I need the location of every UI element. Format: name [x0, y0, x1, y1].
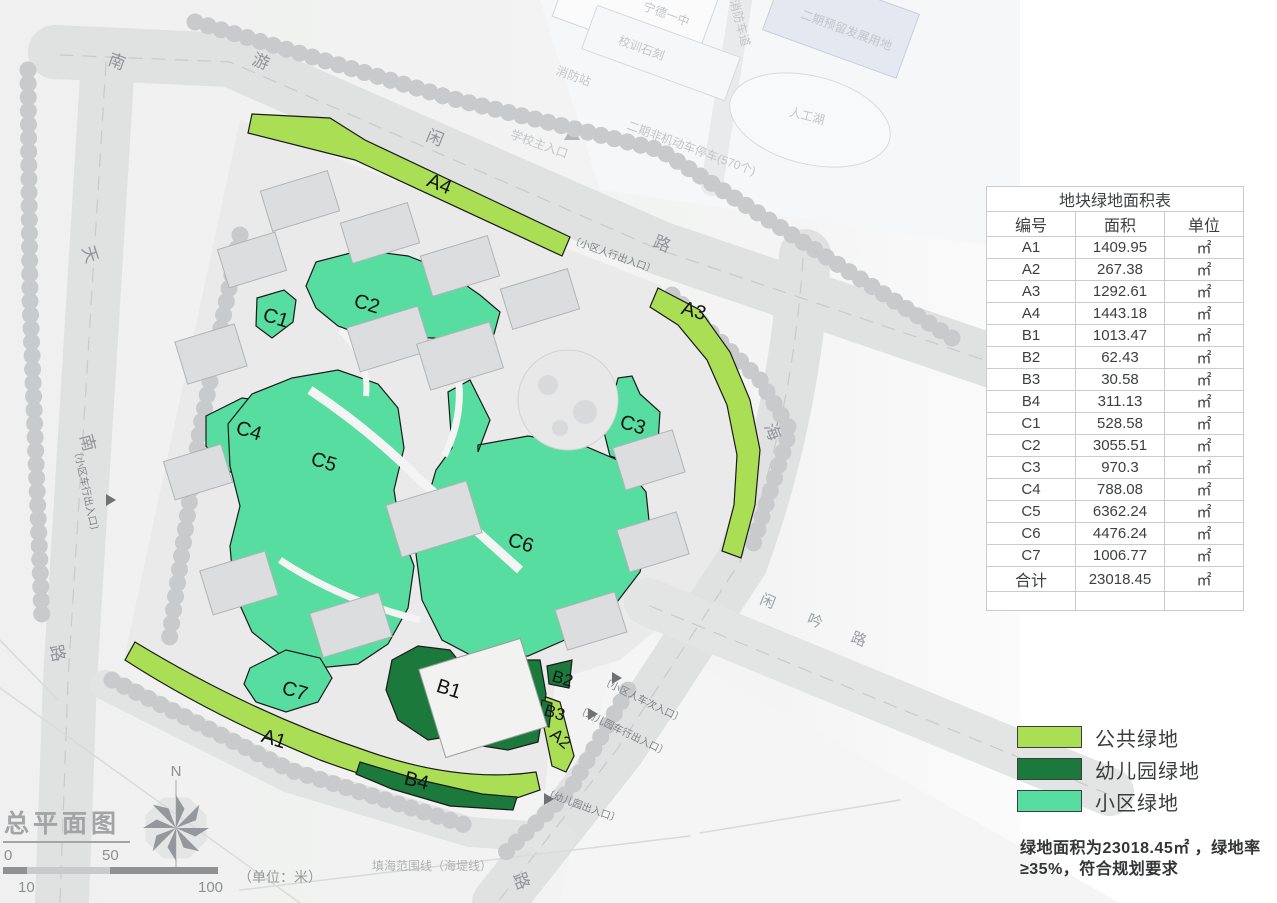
compliance-note: 绿地面积为23018.45㎡ ，绿地率 ≥35%，符合规划要求 — [1020, 838, 1265, 880]
legend-label: 小区绿地 — [1095, 787, 1179, 816]
table-row: B11013.47㎡ — [987, 325, 1244, 347]
cell-area: 62.43 — [1076, 347, 1165, 369]
kindergarten-green-swatch — [1017, 758, 1082, 780]
public-green-swatch — [1017, 726, 1082, 748]
cell-area: 1443.18 — [1076, 303, 1165, 325]
cell-unit: ㎡ — [1165, 567, 1244, 592]
cell-unit: ㎡ — [1165, 435, 1244, 457]
scale-0: 0 — [4, 847, 12, 864]
scale-unit: （单位：米） — [238, 869, 322, 885]
table-row: B330.58㎡ — [987, 369, 1244, 391]
cell-area: 23018.45 — [1076, 567, 1165, 592]
cell-area: 1013.47 — [1076, 325, 1165, 347]
cell-id: A4 — [987, 303, 1076, 325]
cell-unit: ㎡ — [1165, 259, 1244, 281]
cell-area: 3055.51 — [1076, 435, 1165, 457]
cell-area: 4476.24 — [1076, 523, 1165, 545]
cell-area: 6362.24 — [1076, 501, 1165, 523]
cell-area: 788.08 — [1076, 479, 1165, 501]
north-label: N — [171, 763, 182, 780]
cell-unit: ㎡ — [1165, 237, 1244, 259]
cell-id: A2 — [987, 259, 1076, 281]
cell-id: C6 — [987, 523, 1076, 545]
cell-unit: ㎡ — [1165, 501, 1244, 523]
table-row: B4311.13㎡ — [987, 391, 1244, 413]
cell-unit: ㎡ — [1165, 545, 1244, 567]
reclamation-line-label: 填海范围线（海堤线） — [372, 858, 492, 873]
cell-unit: ㎡ — [1165, 281, 1244, 303]
cell-id: C5 — [987, 501, 1076, 523]
table-row: B262.43㎡ — [987, 347, 1244, 369]
cell-unit: ㎡ — [1165, 413, 1244, 435]
cell-unit: ㎡ — [1165, 523, 1244, 545]
legend: 公共绿地 幼儿园绿地 小区绿地 — [1017, 726, 1200, 822]
table-header-unit: 单位 — [1165, 212, 1244, 237]
cell-id: A3 — [987, 281, 1076, 303]
central-garden — [518, 350, 618, 450]
cell-area: 970.3 — [1076, 457, 1165, 479]
scale-50: 50 — [102, 847, 119, 864]
table-row: C64476.24㎡ — [987, 523, 1244, 545]
table-header-id: 编号 — [987, 212, 1076, 237]
cell-unit: ㎡ — [1165, 479, 1244, 501]
cell-id: B4 — [987, 391, 1076, 413]
green-area-panel: 地块绿地面积表 编号 面积 单位 A11409.95㎡ A2267.38㎡ A3… — [986, 186, 1244, 611]
legend-label: 幼儿园绿地 — [1095, 755, 1200, 784]
cell-id: C3 — [987, 457, 1076, 479]
cell-id: B2 — [987, 347, 1076, 369]
table-row: C4788.08㎡ — [987, 479, 1244, 501]
legend-label: 公共绿地 — [1095, 723, 1179, 752]
legend-item-community: 小区绿地 — [1017, 790, 1200, 812]
cell-unit: ㎡ — [1165, 347, 1244, 369]
cell-area: 1006.77 — [1076, 545, 1165, 567]
table-row: C1528.58㎡ — [987, 413, 1244, 435]
cell-id: 合计 — [987, 567, 1076, 592]
table-row: A41443.18㎡ — [987, 303, 1244, 325]
cell-id: A1 — [987, 237, 1076, 259]
cell-area: 1292.61 — [1076, 281, 1165, 303]
table-row: A2267.38㎡ — [987, 259, 1244, 281]
cell-id: C2 — [987, 435, 1076, 457]
scale-10: 10 — [18, 879, 35, 896]
cell-id: C1 — [987, 413, 1076, 435]
cell-area: 30.58 — [1076, 369, 1165, 391]
cell-unit: ㎡ — [1165, 303, 1244, 325]
community-green-swatch — [1017, 790, 1082, 812]
cell-unit: ㎡ — [1165, 457, 1244, 479]
cell-unit: ㎡ — [1165, 369, 1244, 391]
cell-area: 267.38 — [1076, 259, 1165, 281]
table-row: C71006.77㎡ — [987, 545, 1244, 567]
green-area-table: 地块绿地面积表 编号 面积 单位 A11409.95㎡ A2267.38㎡ A3… — [986, 186, 1244, 611]
table-header-area: 面积 — [1076, 212, 1165, 237]
drawing-title: 总平面图 — [4, 810, 120, 838]
cell-area: 528.58 — [1076, 413, 1165, 435]
table-row: A11409.95㎡ — [987, 237, 1244, 259]
cell-area: 311.13 — [1076, 391, 1165, 413]
table-row: A31292.61㎡ — [987, 281, 1244, 303]
scale-100: 100 — [198, 879, 223, 896]
legend-item-kindergarten: 幼儿园绿地 — [1017, 758, 1200, 780]
legend-item-public: 公共绿地 — [1017, 726, 1200, 748]
cell-area: 1409.95 — [1076, 237, 1165, 259]
cell-id: C7 — [987, 545, 1076, 567]
table-row: C3970.3㎡ — [987, 457, 1244, 479]
table-row: C23055.51㎡ — [987, 435, 1244, 457]
table-row-empty — [987, 592, 1244, 611]
table-title: 地块绿地面积表 — [987, 187, 1244, 212]
site-plan-page: { "page": { "title": "总平面图" }, "colors":… — [0, 0, 1277, 903]
cell-id: B3 — [987, 369, 1076, 391]
table-row: C56362.24㎡ — [987, 501, 1244, 523]
table-row-total: 合计23018.45㎡ — [987, 567, 1244, 592]
cell-unit: ㎡ — [1165, 325, 1244, 347]
cell-id: C4 — [987, 479, 1076, 501]
cell-unit: ㎡ — [1165, 391, 1244, 413]
cell-id: B1 — [987, 325, 1076, 347]
